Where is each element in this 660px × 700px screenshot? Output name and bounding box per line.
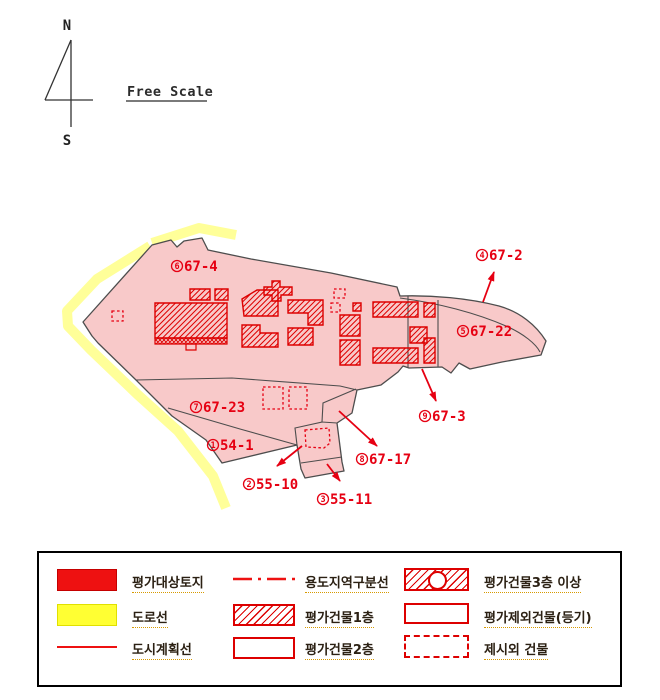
- building: [288, 328, 313, 345]
- label-num: 8: [359, 455, 364, 465]
- arrow-67-3: [422, 369, 436, 401]
- building: [373, 348, 418, 363]
- legend-label-subject-land: 평가대상토지: [132, 572, 204, 593]
- compass-diagonal-line: [45, 40, 71, 100]
- label-num: 5: [460, 327, 465, 337]
- parcel-label-67-2: 4 67-2: [477, 248, 523, 264]
- legend-label-extra-building: 제시외 건물: [484, 639, 548, 660]
- legend-label-excluded-building: 평가제외건물(등기): [484, 607, 592, 628]
- legend-swatch-building-2f: [233, 637, 295, 659]
- legend-3f-circle-icon: [428, 571, 447, 590]
- label-lot: 67-23: [203, 400, 245, 416]
- legend-swatch-excluded-building: [404, 603, 469, 624]
- legend-swatch-subject-land: [57, 569, 117, 591]
- parcel-label-55-10: 2 55-10: [244, 477, 299, 493]
- legend-label-building-1f: 평가건물1층: [305, 607, 374, 628]
- parcel-label-55-11: 3 55-11: [318, 492, 373, 508]
- legend-label-building-2f: 평가건물2층: [305, 639, 374, 660]
- building: [340, 340, 360, 365]
- legend-swatch-road-line: [57, 604, 117, 626]
- cadastral-map-canvas: N S Free Scale: [0, 0, 660, 545]
- free-scale-label: Free Scale: [127, 84, 213, 100]
- building-small: [353, 303, 361, 311]
- appraisal-map-page: N S Free Scale: [0, 0, 660, 700]
- building: [424, 303, 435, 317]
- legend-box: 평가대상토지 도로선 도시계획선 용도지역구분선 평가건물1층 평가건물2층 평…: [37, 551, 622, 687]
- parcel-outline: [83, 238, 546, 478]
- legend-label-city-plan-line: 도시계획선: [132, 639, 192, 660]
- label-num: 1: [210, 441, 215, 451]
- parcel-label-67-3: 9 67-3: [420, 409, 466, 425]
- label-lot: 67-2: [489, 248, 523, 264]
- label-lot: 67-4: [184, 259, 218, 275]
- legend-label-road-line: 도로선: [132, 607, 168, 628]
- legend-label-building-3f-plus: 평가건물3층 이상: [484, 572, 581, 593]
- compass: [45, 40, 93, 127]
- label-num: 3: [320, 495, 325, 505]
- legend-swatch-extra-building: [404, 635, 469, 658]
- legend-swatch-building-1f: [233, 604, 295, 626]
- label-lot: 67-17: [369, 452, 411, 468]
- label-num: 6: [174, 262, 179, 272]
- building: [215, 289, 228, 300]
- label-lot: 67-3: [432, 409, 466, 425]
- building: [340, 315, 360, 336]
- arrow-67-17: [339, 411, 377, 446]
- label-num: 2: [246, 480, 251, 490]
- label-lot: 55-11: [330, 492, 372, 508]
- label-lot: 54-1: [220, 438, 254, 454]
- building: [373, 302, 418, 317]
- legend-swatch-zoning-line: [232, 576, 296, 582]
- legend-label-zoning-line: 용도지역구분선: [305, 572, 389, 593]
- building: [424, 338, 435, 363]
- parcel-label-67-17: 8 67-17: [357, 452, 412, 468]
- building-floor2-strip: [155, 338, 227, 344]
- legend-swatch-building-3f-plus: [404, 568, 469, 591]
- label-num: 4: [479, 251, 484, 261]
- compass-south-label: S: [63, 133, 71, 149]
- label-num: 9: [422, 412, 427, 422]
- legend-swatch-city-plan-line: [57, 646, 117, 648]
- label-num: 7: [193, 403, 198, 413]
- building: [190, 289, 210, 300]
- arrow-67-2: [483, 272, 494, 302]
- compass-north-label: N: [63, 18, 71, 34]
- label-lot: 67-22: [470, 324, 512, 340]
- building-large-factory: [155, 303, 227, 338]
- label-lot: 55-10: [256, 477, 298, 493]
